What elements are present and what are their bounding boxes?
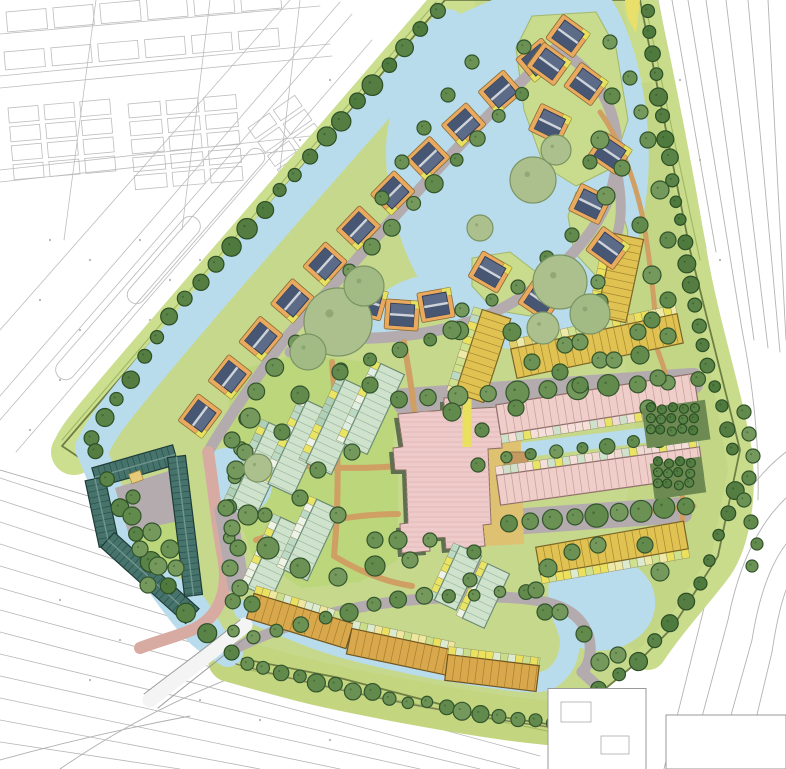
ctx-blocks-b — [4, 28, 280, 70]
site-plan-figure — [0, 0, 786, 769]
school-yellow-wing — [463, 399, 472, 447]
ctx-building-se2 — [666, 715, 786, 769]
plan-layers — [0, 0, 786, 769]
ctx-building-se — [548, 689, 646, 769]
orchard-grid-a — [646, 403, 699, 436]
ctx-blocks-a — [6, 0, 282, 32]
ctx-blocks-d — [128, 95, 243, 190]
masterplan-canvas — [0, 0, 786, 769]
